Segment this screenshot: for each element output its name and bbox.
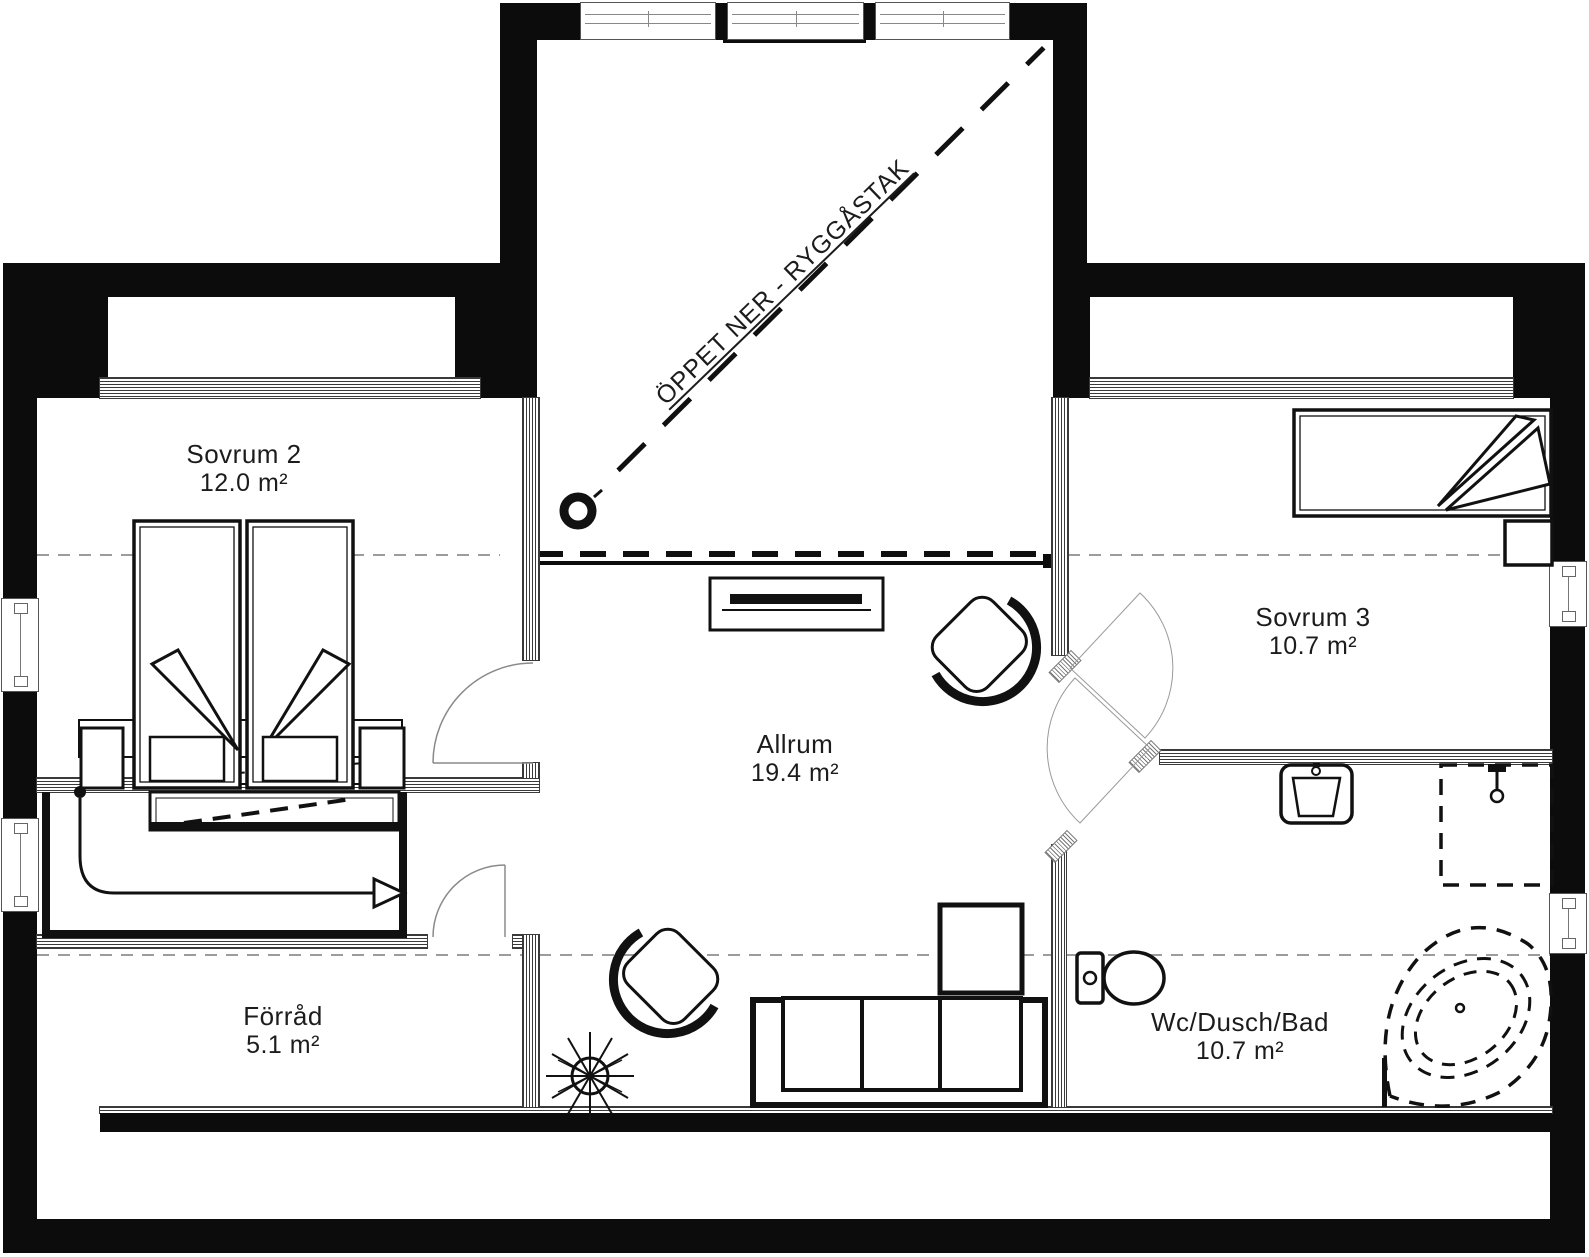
room-area: 19.4 m²	[695, 759, 895, 787]
door-sovrum3	[1070, 593, 1173, 738]
sink	[1281, 763, 1352, 823]
room-label-sovrum2: Sovrum 2 12.0 m²	[144, 440, 344, 497]
armchair	[916, 581, 1059, 724]
corner-sofa	[753, 905, 1045, 1105]
single-bed	[1294, 410, 1552, 565]
room-name: Allrum	[695, 730, 895, 759]
door-bathroom	[1047, 678, 1150, 823]
room-area: 12.0 m²	[144, 469, 344, 497]
door-sovrum2	[433, 663, 533, 763]
tv-bench	[710, 578, 883, 630]
chimney-flue	[564, 490, 602, 525]
room-label-wc: Wc/Dusch/Bad 10.7 m²	[1116, 1008, 1364, 1065]
staircase	[42, 786, 407, 938]
tub-platform-edge	[1382, 1058, 1387, 1107]
room-label-forrad: Förråd 5.1 m²	[183, 1002, 383, 1059]
room-label-allrum: Allrum 19.4 m²	[695, 730, 895, 787]
floor-plan: ÖPPET NER - RYGGÅSTAK	[0, 0, 1589, 1257]
plant	[546, 1032, 634, 1120]
double-bed	[79, 521, 404, 788]
nightstand	[360, 728, 404, 788]
room-name: Sovrum 3	[1213, 603, 1413, 632]
room-area: 10.7 m²	[1213, 632, 1413, 660]
nightstand	[81, 728, 123, 788]
room-area: 10.7 m²	[1116, 1037, 1364, 1065]
bathtub	[1379, 928, 1553, 1107]
room-name: Förråd	[183, 1002, 383, 1031]
room-name: Wc/Dusch/Bad	[1116, 1008, 1364, 1037]
door-forrad	[433, 865, 505, 937]
toilet	[1077, 952, 1164, 1004]
shower	[1441, 764, 1552, 885]
tv	[730, 594, 862, 604]
room-name: Sovrum 2	[144, 440, 344, 469]
armchair	[591, 913, 734, 1056]
room-area: 5.1 m²	[183, 1031, 383, 1059]
room-label-sovrum3: Sovrum 3 10.7 m²	[1213, 603, 1413, 660]
nightstand	[1505, 521, 1552, 565]
